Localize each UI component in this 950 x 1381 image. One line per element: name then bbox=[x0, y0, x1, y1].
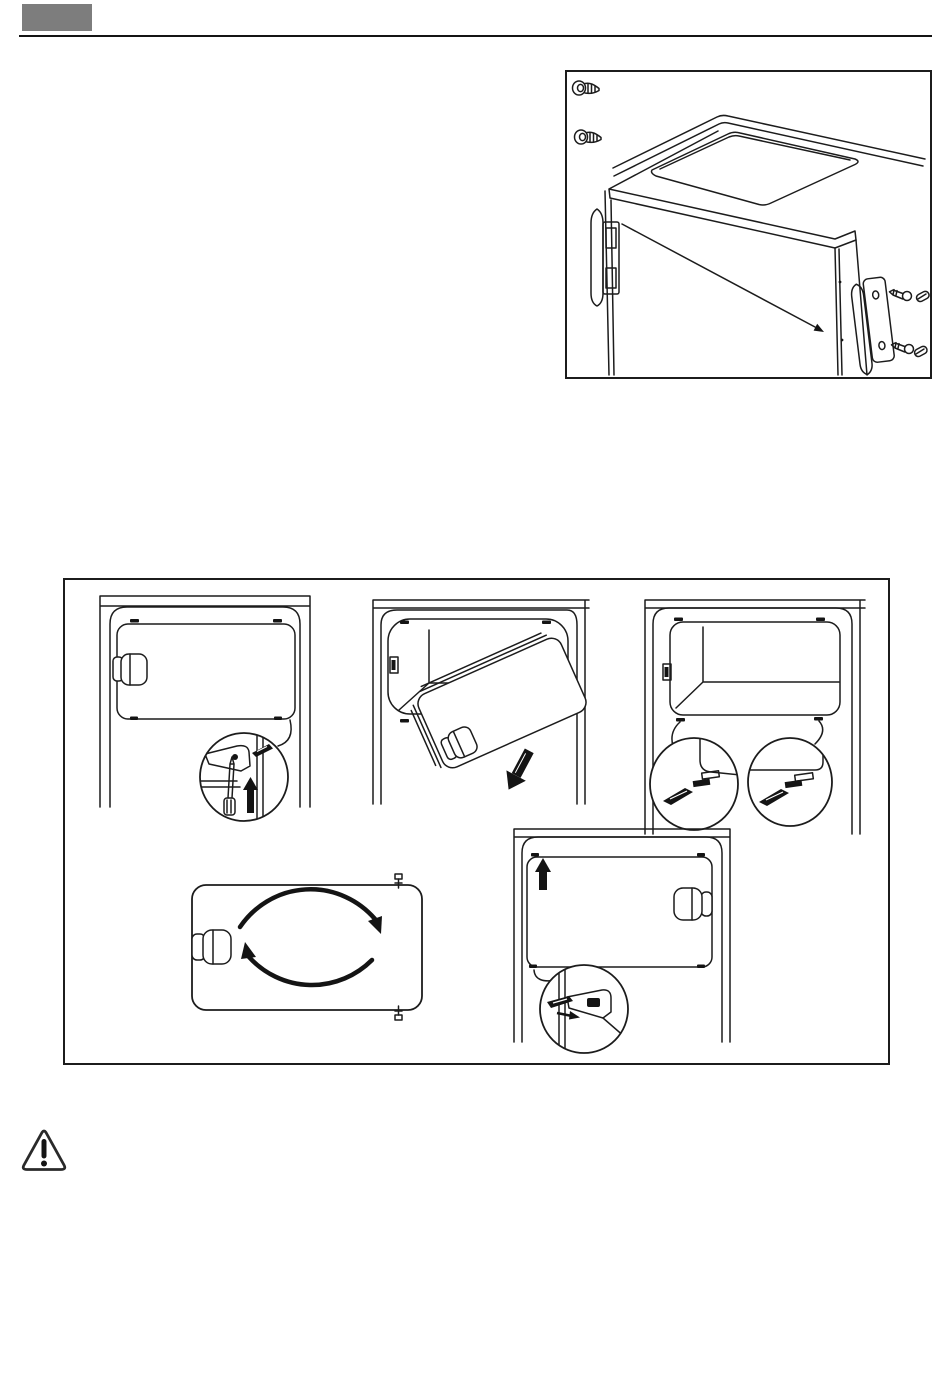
flap-reversal-step-4 bbox=[185, 852, 440, 1042]
fridge-corner-illustration bbox=[567, 72, 930, 377]
flap-reversal-step-1 bbox=[97, 594, 312, 849]
screw-cap-icon bbox=[915, 290, 930, 303]
chapter-marker-block bbox=[22, 4, 92, 31]
flap-reversal-step-5 bbox=[507, 822, 742, 1067]
freezer-flap bbox=[527, 857, 712, 967]
flap-reversal-step-3 bbox=[643, 594, 878, 844]
magnifier-circle bbox=[748, 738, 832, 826]
magnifier-circle bbox=[200, 733, 288, 822]
manual-page bbox=[0, 0, 950, 1381]
magnifier-leader bbox=[278, 720, 291, 746]
pointer-arrow-icon bbox=[622, 224, 824, 332]
flap-reversal-step-2 bbox=[370, 594, 592, 809]
down-arrow-icon bbox=[499, 746, 539, 795]
wall-plug-icon bbox=[573, 81, 600, 95]
open-compartment bbox=[663, 622, 840, 715]
wall-plug-icon bbox=[575, 130, 602, 144]
fridge-lid bbox=[613, 115, 925, 205]
pin-marks bbox=[674, 618, 825, 722]
screw-icon bbox=[890, 290, 912, 301]
handle-mounting-figure bbox=[565, 70, 932, 379]
screw-cap-icon bbox=[913, 345, 928, 358]
header-rule bbox=[19, 35, 932, 37]
magnifier-circle bbox=[650, 738, 740, 830]
warning-triangle-icon bbox=[20, 1128, 68, 1174]
freezer-flap-tilted bbox=[404, 627, 590, 774]
screw-icon bbox=[892, 343, 914, 354]
freezer-flap bbox=[192, 885, 422, 1010]
magnifier-circle bbox=[540, 965, 633, 1053]
freezer-flap bbox=[113, 624, 295, 719]
fridge-front bbox=[605, 131, 867, 375]
flap-reversal-figure bbox=[63, 578, 890, 1065]
